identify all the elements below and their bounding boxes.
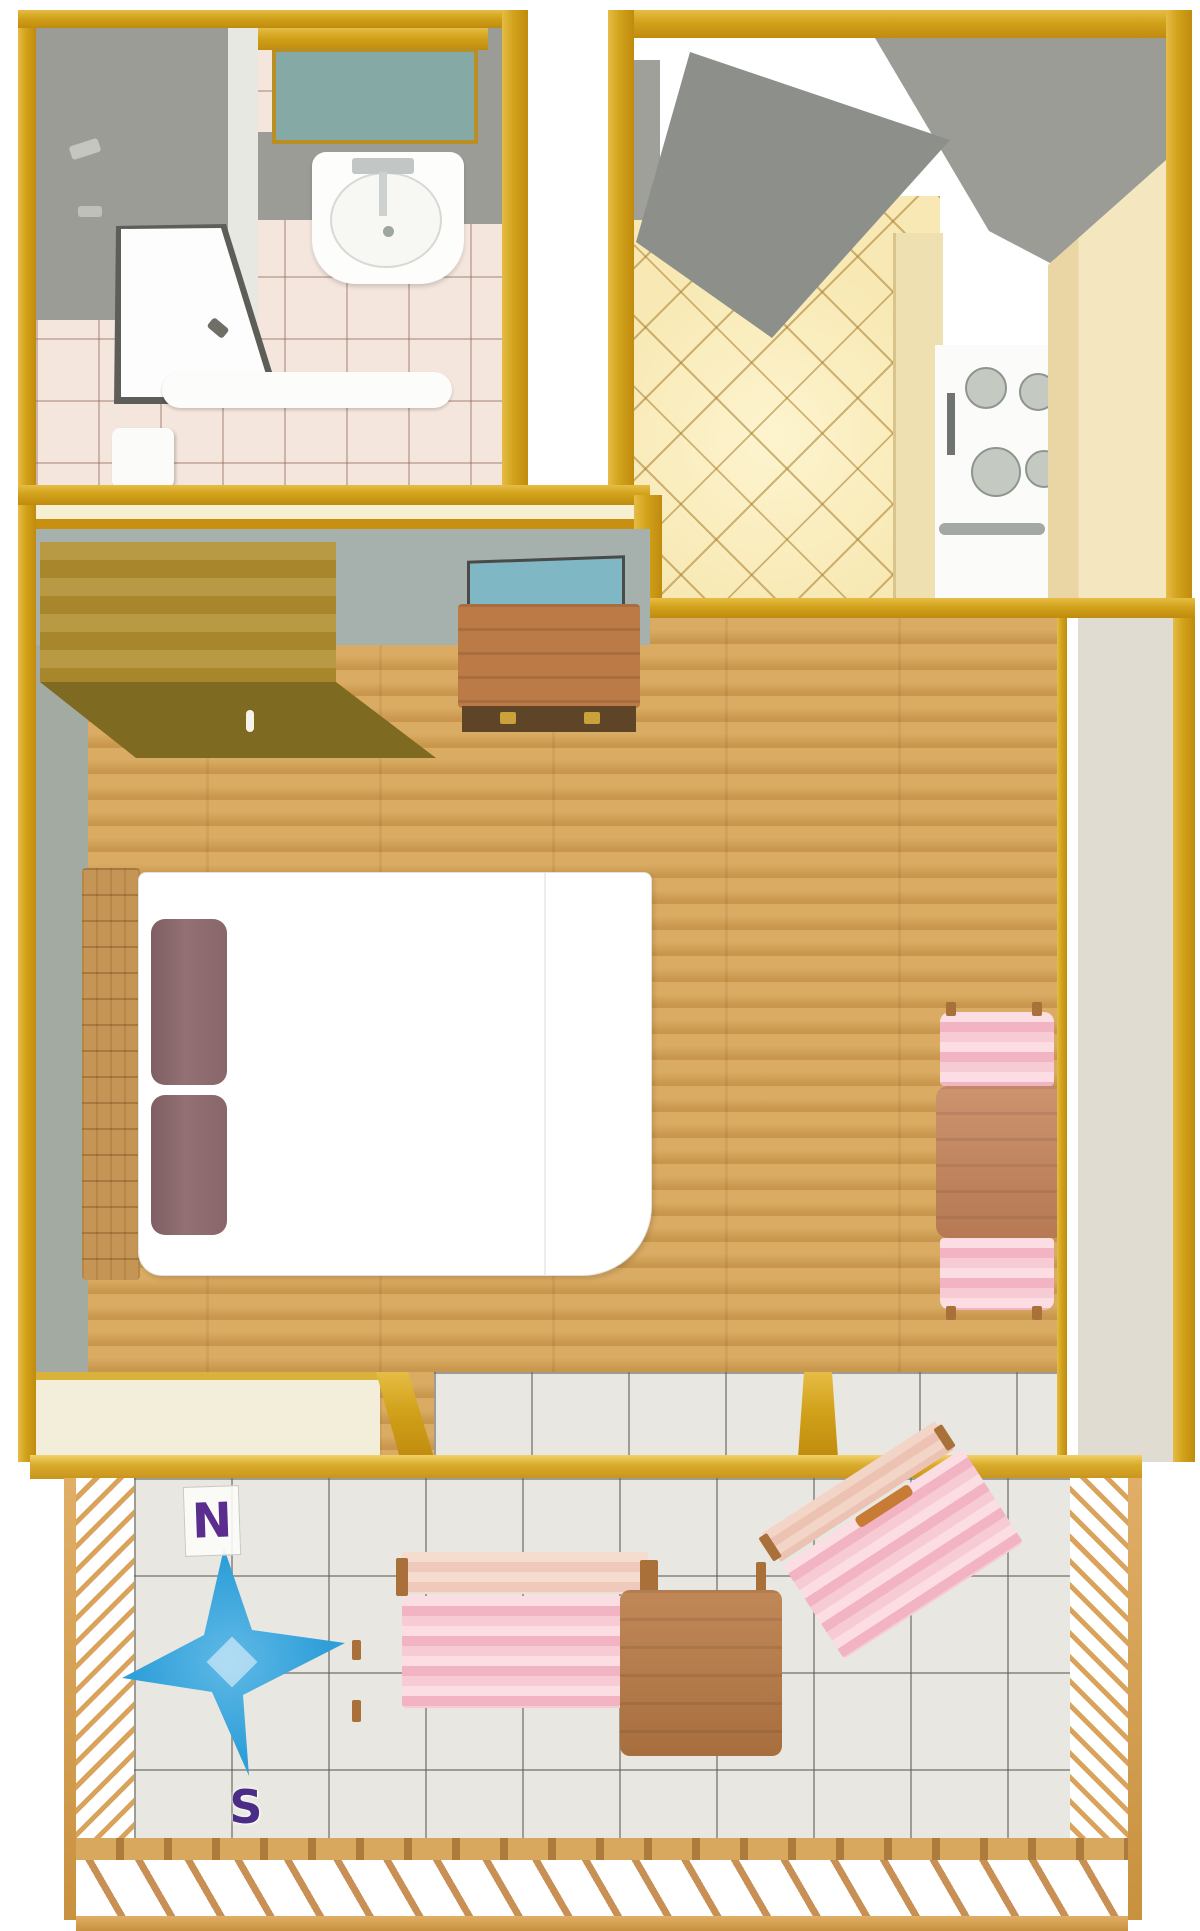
toilet — [112, 428, 174, 488]
main-room-left-wall-strip — [36, 645, 88, 1462]
sink-faucet-stem — [379, 172, 387, 216]
sink-drain — [383, 226, 394, 237]
stove-burner-icon — [971, 447, 1021, 497]
bathroom-window-lintel — [258, 28, 488, 50]
chair-leg-icon — [946, 1002, 956, 1016]
balcony-door-ledge — [36, 1372, 380, 1466]
right-wall-gap — [1067, 618, 1078, 1462]
balcony-table — [620, 1590, 782, 1756]
balcony-right-railing — [1070, 1478, 1128, 1846]
bed-pillow — [151, 919, 227, 1085]
north-letter: N — [191, 1492, 233, 1549]
stove-burner-icon — [965, 367, 1007, 409]
dining-chair-top — [940, 1012, 1054, 1086]
balcony-right-post — [1128, 1478, 1142, 1920]
kitchen-bottom-wall — [650, 598, 1195, 618]
wardrobe-keyhole-icon — [246, 710, 254, 732]
stove — [935, 345, 1048, 598]
dresser-base — [462, 706, 636, 732]
stove-knob-strip — [947, 393, 955, 455]
balcony-bottom-rail-top — [76, 1838, 1128, 1860]
bathroom-window — [272, 48, 478, 144]
balcony-left-post — [64, 1478, 76, 1920]
kitchen-right-wall — [1166, 10, 1192, 618]
oven-handle — [939, 523, 1045, 535]
bed-seam — [544, 873, 546, 1275]
lounger-frame-icon — [396, 1558, 408, 1596]
bed-pillow — [151, 1095, 227, 1235]
compass-south-label: S — [220, 1776, 272, 1838]
bathroom-right-wall — [502, 10, 528, 490]
lounger-leg-icon — [352, 1640, 361, 1660]
left-outer-wall — [18, 10, 36, 1462]
divider-wall-upper — [18, 485, 650, 505]
balcony-lounger-left-cushion — [402, 1596, 652, 1708]
bathtub — [162, 372, 452, 408]
dresser — [458, 604, 640, 708]
table-leg-icon — [648, 1560, 658, 1592]
bathroom-top-wall — [18, 10, 528, 28]
chair-leg-icon — [1032, 1002, 1042, 1016]
south-letter: S — [229, 1780, 262, 1834]
double-bed — [138, 872, 652, 1276]
kitchen-top-wall — [608, 10, 1192, 38]
table-leg-icon — [756, 1562, 766, 1592]
divider-cream-band — [36, 505, 650, 519]
door-mullion — [798, 1372, 838, 1458]
balcony-door-opening — [434, 1372, 1057, 1458]
right-outer-wall — [1173, 618, 1195, 1462]
lounger-leg-icon — [352, 1700, 361, 1722]
balcony-bottom-railing — [76, 1860, 1128, 1916]
bed-headboard — [82, 868, 140, 1280]
dining-chair-bottom — [940, 1238, 1054, 1310]
dresser-handle-icon — [500, 712, 516, 724]
wardrobe-top — [40, 542, 336, 682]
divider-wall-lower — [36, 519, 650, 529]
balcony-bottom-rail-base — [76, 1916, 1128, 1931]
dresser-handle-icon — [584, 712, 600, 724]
chair-leg-icon — [946, 1306, 956, 1320]
exterior-wall-band — [1078, 618, 1173, 1462]
floor-plan: N S — [0, 0, 1200, 1931]
chair-leg-icon — [1032, 1306, 1042, 1320]
wall-hook-icon — [78, 206, 102, 217]
main-room-right-wall — [1057, 618, 1067, 1462]
balcony-left-railing — [76, 1478, 134, 1846]
balcony-lounger-left-back — [402, 1552, 648, 1594]
compass-north-label: N — [183, 1485, 241, 1557]
